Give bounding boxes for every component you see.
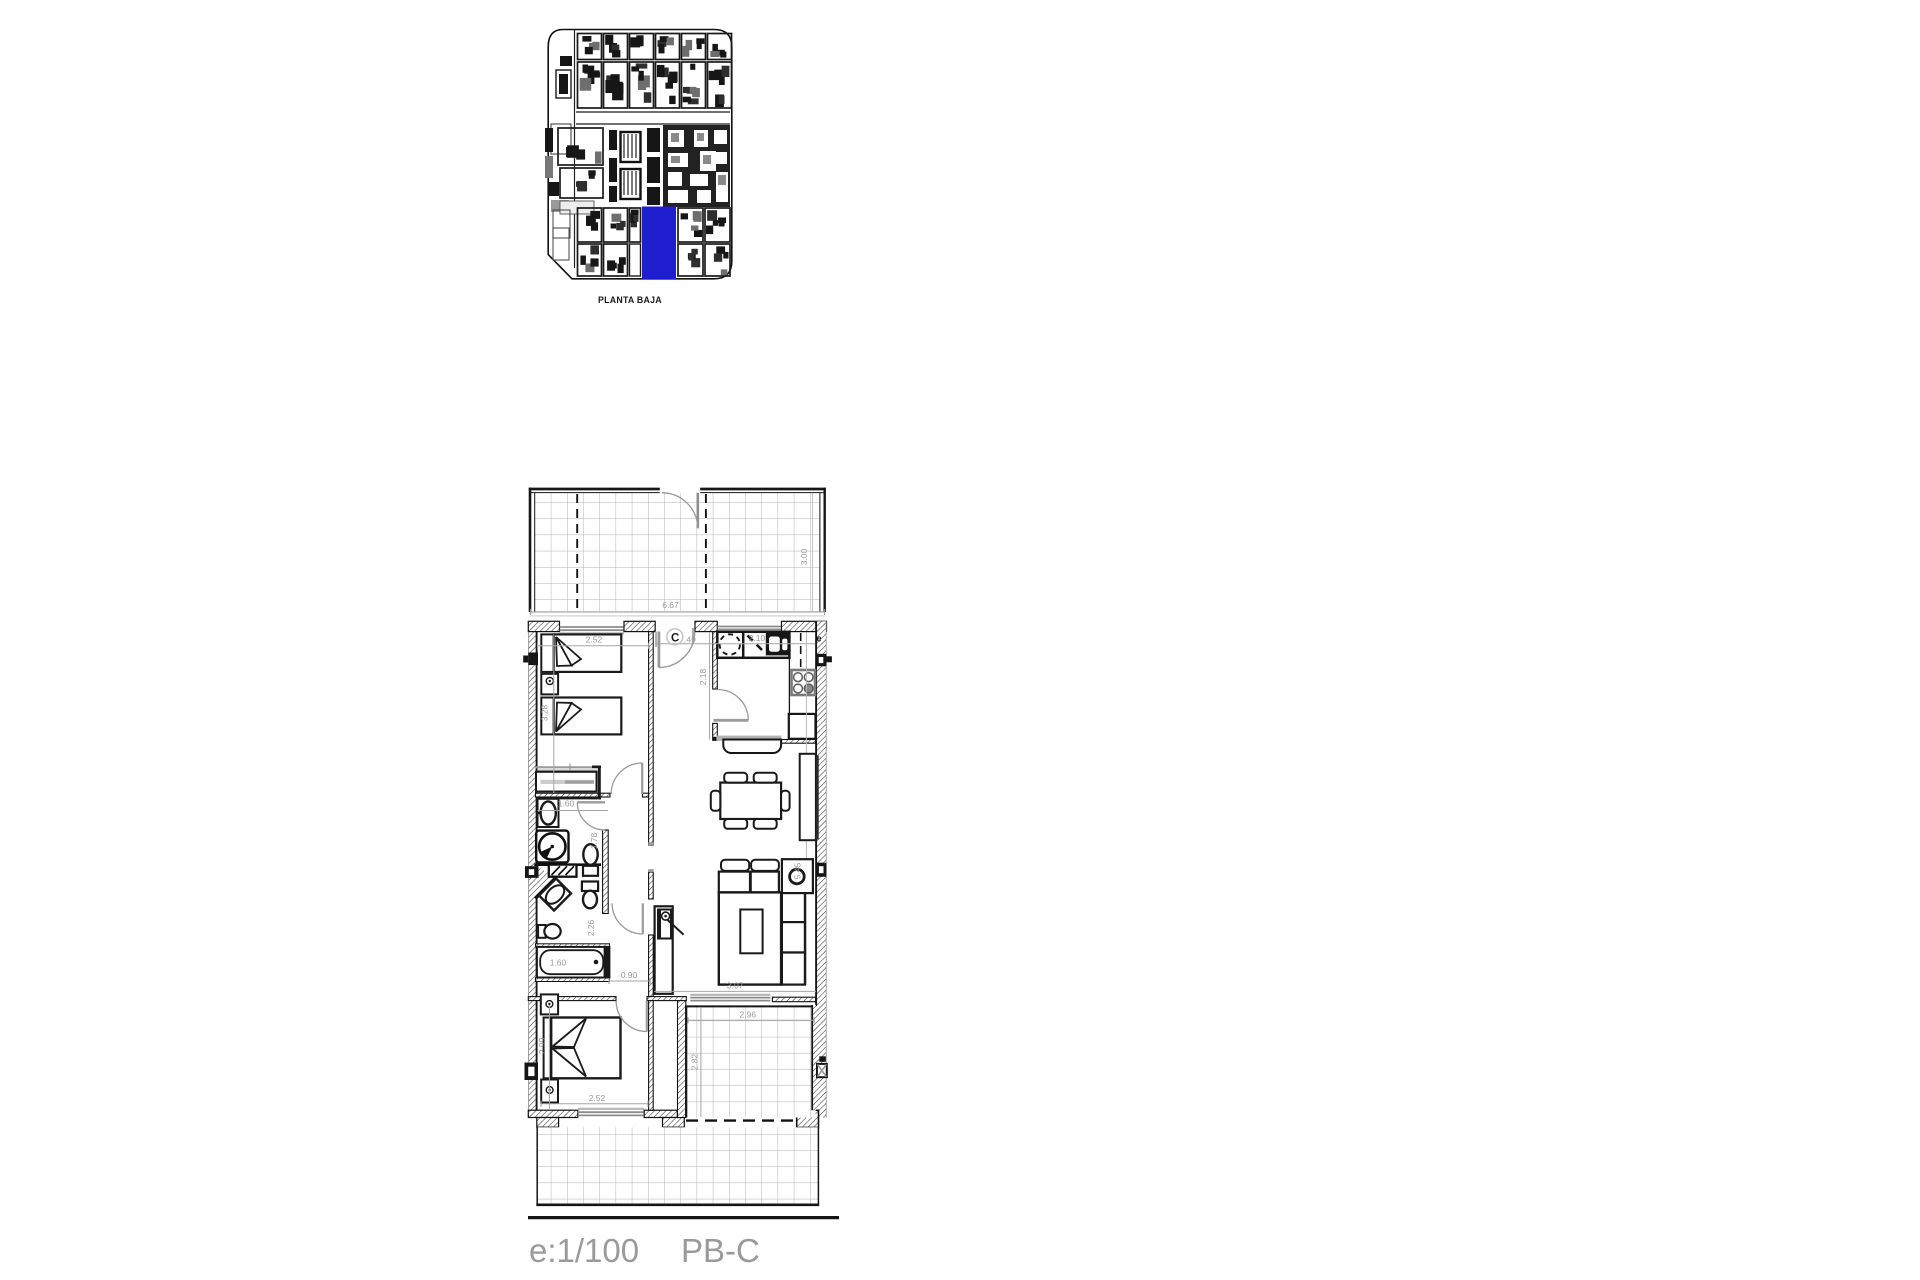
svg-text:0.90: 0.90 (621, 970, 638, 980)
svg-text:1.60: 1.60 (558, 799, 575, 809)
svg-text:3.28: 3.28 (540, 704, 550, 721)
svg-text:2.52: 2.52 (589, 1093, 606, 1103)
svg-text:1.78: 1.78 (589, 832, 599, 849)
svg-text:3.00: 3.00 (799, 548, 809, 565)
svg-text:2.82: 2.82 (689, 1053, 699, 1070)
svg-text:e: e (817, 634, 822, 644)
svg-text:2.10: 2.10 (749, 633, 766, 643)
svg-text:1.60: 1.60 (550, 958, 567, 968)
svg-text:2.96: 2.96 (740, 1009, 757, 1019)
svg-text:PLANTA BAJA: PLANTA BAJA (598, 295, 662, 305)
svg-text:PB-C: PB-C (681, 1232, 760, 1269)
svg-text:2.99: 2.99 (537, 1037, 547, 1054)
svg-text:2.18: 2.18 (698, 668, 708, 685)
svg-text:.49: .49 (684, 634, 696, 644)
svg-text:C: C (671, 632, 679, 644)
svg-text:5.45: 5.45 (792, 862, 802, 879)
svg-text:6.67: 6.67 (662, 600, 679, 610)
svg-text:2.26: 2.26 (586, 919, 596, 936)
svg-text:e:1/100: e:1/100 (529, 1232, 639, 1269)
svg-text:2.52: 2.52 (586, 634, 603, 644)
svg-text:3.07: 3.07 (727, 980, 744, 990)
